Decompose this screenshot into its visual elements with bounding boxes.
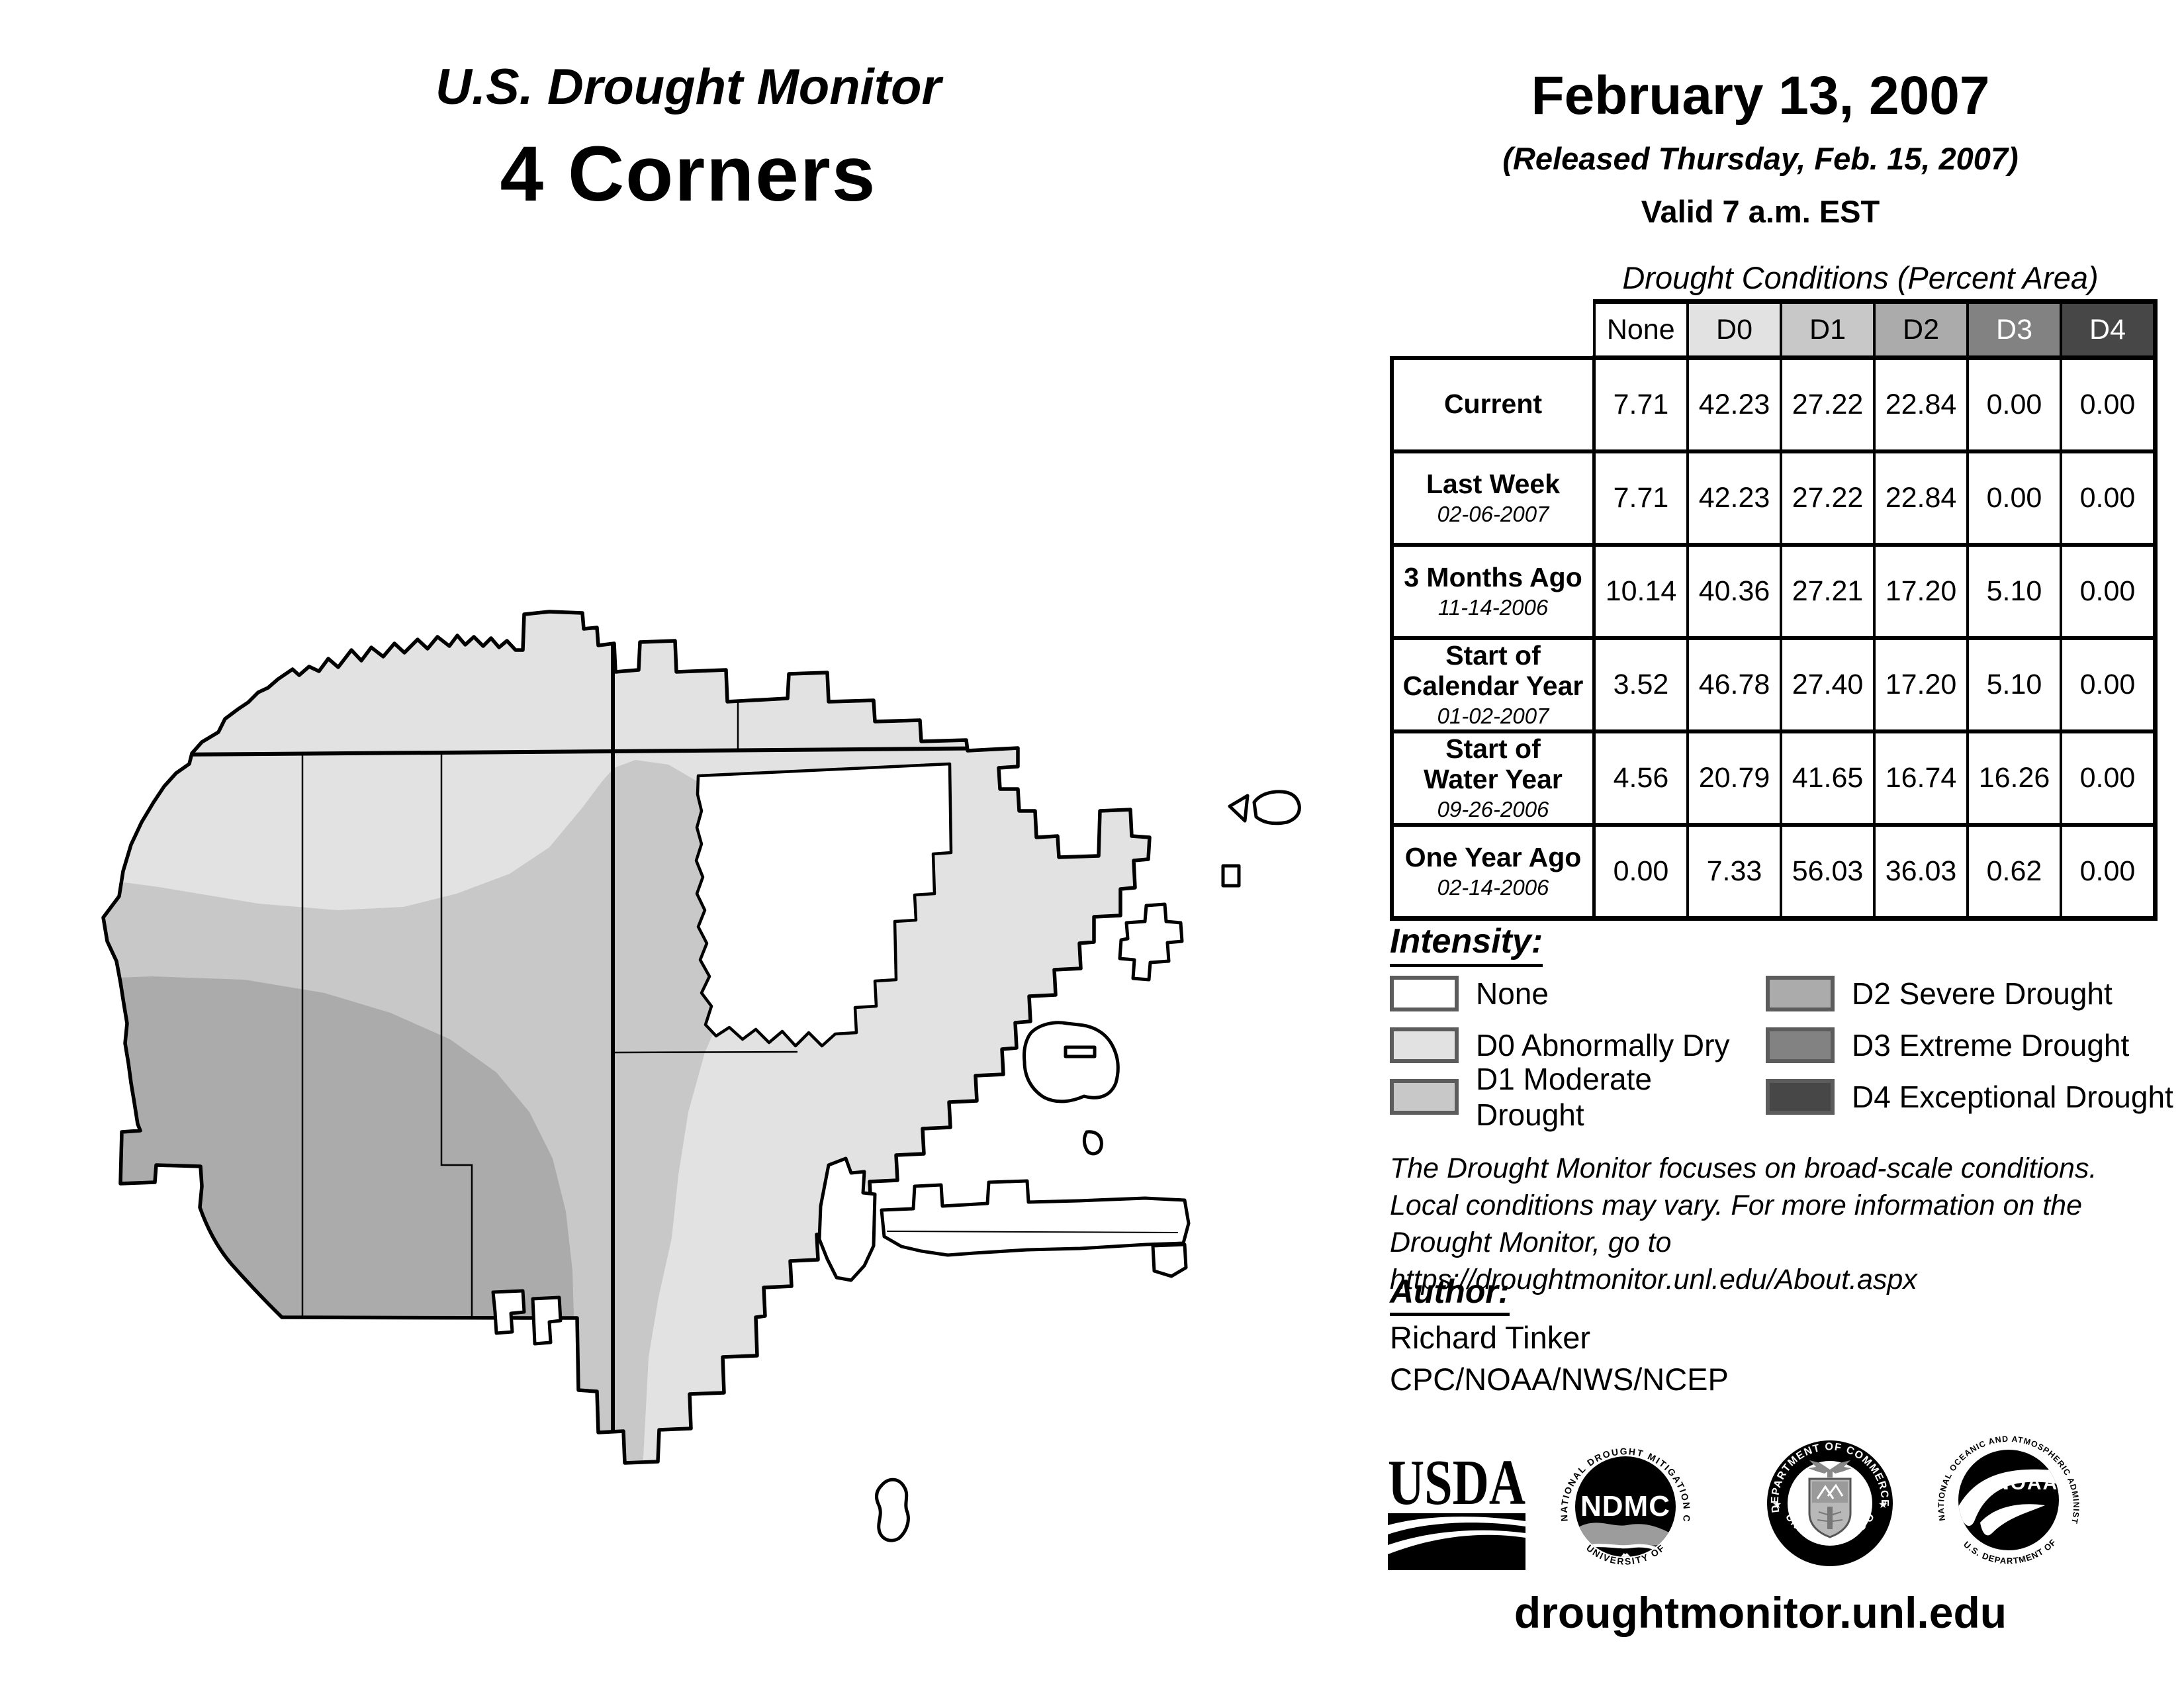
value-cell: 7.71 — [1594, 451, 1688, 545]
table-row: Current7.7142.2327.2222.840.000.00 — [1392, 358, 2156, 452]
value-cell: 16.26 — [1968, 731, 2061, 825]
value-cell: 5.10 — [1968, 638, 2061, 731]
value-cell: 41.65 — [1781, 731, 1874, 825]
value-cell: 27.40 — [1781, 638, 1874, 731]
row-label-cell: Start of Calendar Year01-02-2007 — [1392, 638, 1594, 731]
row-label-cell: 3 Months Ago11-14-2006 — [1392, 545, 1594, 638]
author-org: CPC/NOAA/NWS/NCEP — [1390, 1361, 1729, 1397]
conditions-table-wrap: NoneD0D1D2D3D4 Current7.7142.2327.2222.8… — [1390, 299, 2158, 921]
legend-swatch — [1766, 1027, 1835, 1063]
table-header-row: NoneD0D1D2D3D4 — [1392, 302, 2156, 358]
legend-swatch — [1390, 1079, 1459, 1115]
legend-item-d4: D4 Exceptional Drought — [1766, 1079, 2173, 1115]
value-cell: 46.78 — [1688, 638, 1781, 731]
value-cell: 0.00 — [2061, 638, 2156, 731]
table-row: Start of Calendar Year01-02-20073.5246.7… — [1392, 638, 2156, 731]
value-cell: 0.00 — [2061, 731, 2156, 825]
row-label-cell: Current — [1392, 358, 1594, 452]
commerce-star-left: ★ — [1772, 1499, 1782, 1511]
value-cell: 0.00 — [2061, 358, 2156, 452]
row-label-cell: One Year Ago02-14-2006 — [1392, 825, 1594, 919]
conditions-table: NoneD0D1D2D3D4 Current7.7142.2327.2222.8… — [1390, 299, 2158, 921]
released-date: (Released Thursday, Feb. 15, 2007) — [1383, 140, 2138, 177]
value-cell: 40.36 — [1688, 545, 1781, 638]
column-header-none: None — [1594, 302, 1688, 358]
legend-label: D2 Severe Drought — [1852, 976, 2113, 1011]
legend-item-d3: D3 Extreme Drought — [1766, 1027, 2173, 1063]
value-cell: 0.00 — [1594, 825, 1688, 919]
table-title: Drought Conditions (Percent Area) — [1588, 259, 2132, 296]
legend-item-d0: D0 Abnormally Dry — [1390, 1027, 1766, 1063]
column-header-d2: D2 — [1874, 302, 1968, 358]
value-cell: 0.00 — [2061, 545, 2156, 638]
commerce-star-right: ★ — [1878, 1499, 1888, 1511]
value-cell: 4.56 — [1594, 731, 1688, 825]
value-cell: 0.62 — [1968, 825, 2061, 919]
footer-url: droughtmonitor.unl.edu — [1383, 1587, 2138, 1638]
value-cell: 22.84 — [1874, 451, 1968, 545]
legend-label: D0 Abnormally Dry — [1476, 1027, 1729, 1063]
value-cell: 0.00 — [1968, 358, 2061, 452]
table-row: One Year Ago02-14-20060.007.3356.0336.03… — [1392, 825, 2156, 919]
page-title: U.S. Drought Monitor — [291, 58, 1085, 116]
legend-swatch — [1766, 976, 1835, 1011]
table-row: Last Week02-06-20077.7142.2327.2222.840.… — [1392, 451, 2156, 545]
table-row: 3 Months Ago11-14-200610.1440.3627.2117.… — [1392, 545, 2156, 638]
value-cell: 10.14 — [1594, 545, 1688, 638]
intensity-heading: Intensity: — [1390, 921, 1543, 967]
value-cell: 36.03 — [1874, 825, 1968, 919]
region-title: 4 Corners — [291, 129, 1085, 219]
value-cell: 42.23 — [1688, 451, 1781, 545]
value-cell: 0.00 — [2061, 825, 2156, 919]
value-cell: 16.74 — [1874, 731, 1968, 825]
value-cell: 0.00 — [1968, 451, 2061, 545]
value-cell: 5.10 — [1968, 545, 2061, 638]
author-heading: Author: — [1390, 1272, 1510, 1316]
value-cell: 7.71 — [1594, 358, 1688, 452]
noaa-wordmark: NOAA — [1995, 1472, 2058, 1494]
column-header-d0: D0 — [1688, 302, 1781, 358]
drought-monitor-page: U.S. Drought Monitor 4 Corners February … — [0, 0, 2184, 1688]
table-row: Start of Water Year09-26-20064.5620.7941… — [1392, 731, 2156, 825]
value-cell: 22.84 — [1874, 358, 1968, 452]
value-cell: 56.03 — [1781, 825, 1874, 919]
legend-label: None — [1476, 976, 1549, 1011]
value-cell: 17.20 — [1874, 638, 1968, 731]
value-cell: 27.22 — [1781, 358, 1874, 452]
author-name: Richard Tinker — [1390, 1319, 1590, 1356]
column-header-d3: D3 — [1968, 302, 2061, 358]
ndmc-logo: NDMC NATIONAL DROUGHT MITIGATION CENTER … — [1549, 1429, 1702, 1587]
usda-logo: USDA — [1387, 1451, 1528, 1574]
ndmc-wordmark: NDMC — [1580, 1490, 1670, 1523]
row-label-cell: Last Week02-06-2007 — [1392, 451, 1594, 545]
legend-label: D4 Exceptional Drought — [1852, 1079, 2173, 1115]
drought-map — [60, 609, 1330, 1602]
intensity-legend: NoneD0 Abnormally DryD1 Moderate Drought… — [1390, 968, 2173, 1123]
county-line-4 — [614, 1052, 797, 1053]
legend-swatch — [1390, 1027, 1459, 1063]
legend-swatch — [1766, 1079, 1835, 1115]
value-cell: 7.33 — [1688, 825, 1781, 919]
legend-item-d1: D1 Moderate Drought — [1390, 1061, 1766, 1133]
value-cell: 17.20 — [1874, 545, 1968, 638]
value-cell: 27.22 — [1781, 451, 1874, 545]
noaa-seal: NOAA NATIONAL OCEANIC AND ATMOSPHERIC AD… — [1934, 1423, 2083, 1577]
value-cell: 42.23 — [1688, 358, 1781, 452]
legend-item-none: None — [1390, 976, 1766, 1011]
value-cell: 27.21 — [1781, 545, 1874, 638]
valid-time: Valid 7 a.m. EST — [1383, 193, 2138, 230]
value-cell: 3.52 — [1594, 638, 1688, 731]
column-header-d1: D1 — [1781, 302, 1874, 358]
row-label-cell: Start of Water Year09-26-2006 — [1392, 731, 1594, 825]
legend-label: D1 Moderate Drought — [1476, 1061, 1766, 1133]
value-cell: 20.79 — [1688, 731, 1781, 825]
usda-wordmark: USDA — [1388, 1451, 1525, 1518]
commerce-seal: DEPARTMENT OF COMMERCE UNITED STATES OF … — [1762, 1435, 1898, 1571]
legend-item-d2: D2 Severe Drought — [1766, 976, 2173, 1011]
legend-label: D3 Extreme Drought — [1852, 1027, 2129, 1063]
value-cell: 0.00 — [2061, 451, 2156, 545]
column-header-d4: D4 — [2061, 302, 2156, 358]
table-header-blank-cell — [1392, 302, 1594, 358]
map-date: February 13, 2007 — [1383, 65, 2138, 127]
legend-swatch — [1390, 976, 1459, 1011]
